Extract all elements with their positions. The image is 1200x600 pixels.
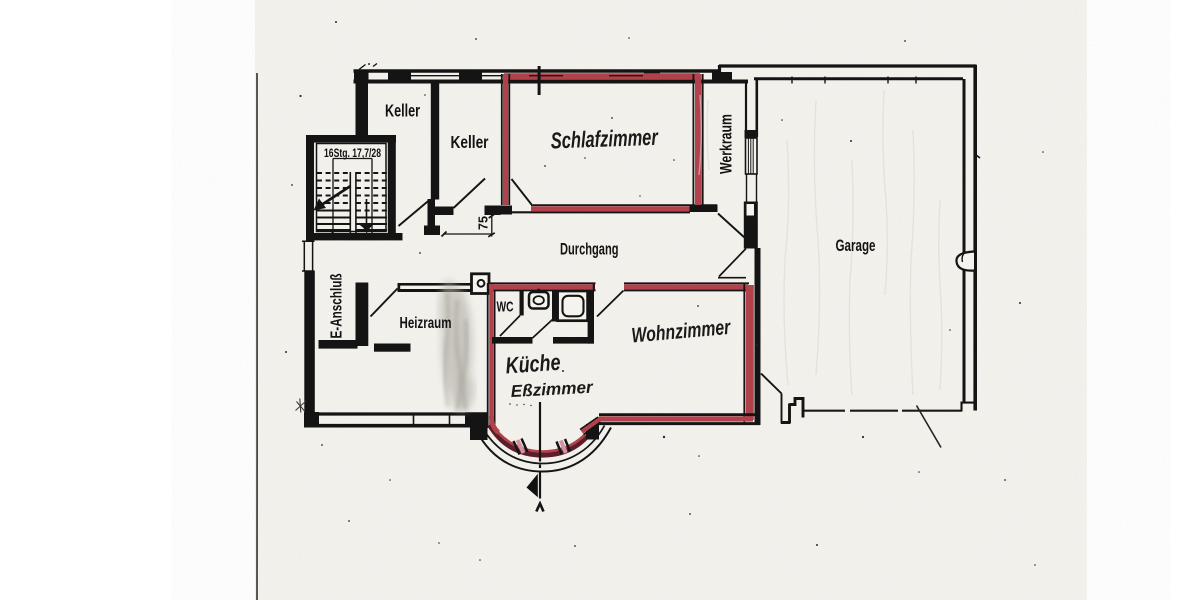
svg-text:Keller: Keller xyxy=(385,101,420,121)
svg-text:16Stg. 17,7/28: 16Stg. 17,7/28 xyxy=(324,148,381,160)
svg-text:Werkraum: Werkraum xyxy=(718,114,736,174)
svg-text:Garage: Garage xyxy=(836,236,876,255)
svg-text:Durchgang: Durchgang xyxy=(560,240,619,259)
svg-text:Keller: Keller xyxy=(451,132,489,152)
svg-text:Schlafzimmer: Schlafzimmer xyxy=(550,124,659,154)
svg-text:75: 75 xyxy=(477,216,491,230)
svg-text:Küche: Küche xyxy=(505,349,562,379)
svg-text:Heizraum: Heizraum xyxy=(400,315,452,332)
svg-text:WC: WC xyxy=(497,299,514,316)
svg-text:E-Anschluß: E-Anschluß xyxy=(329,273,346,338)
